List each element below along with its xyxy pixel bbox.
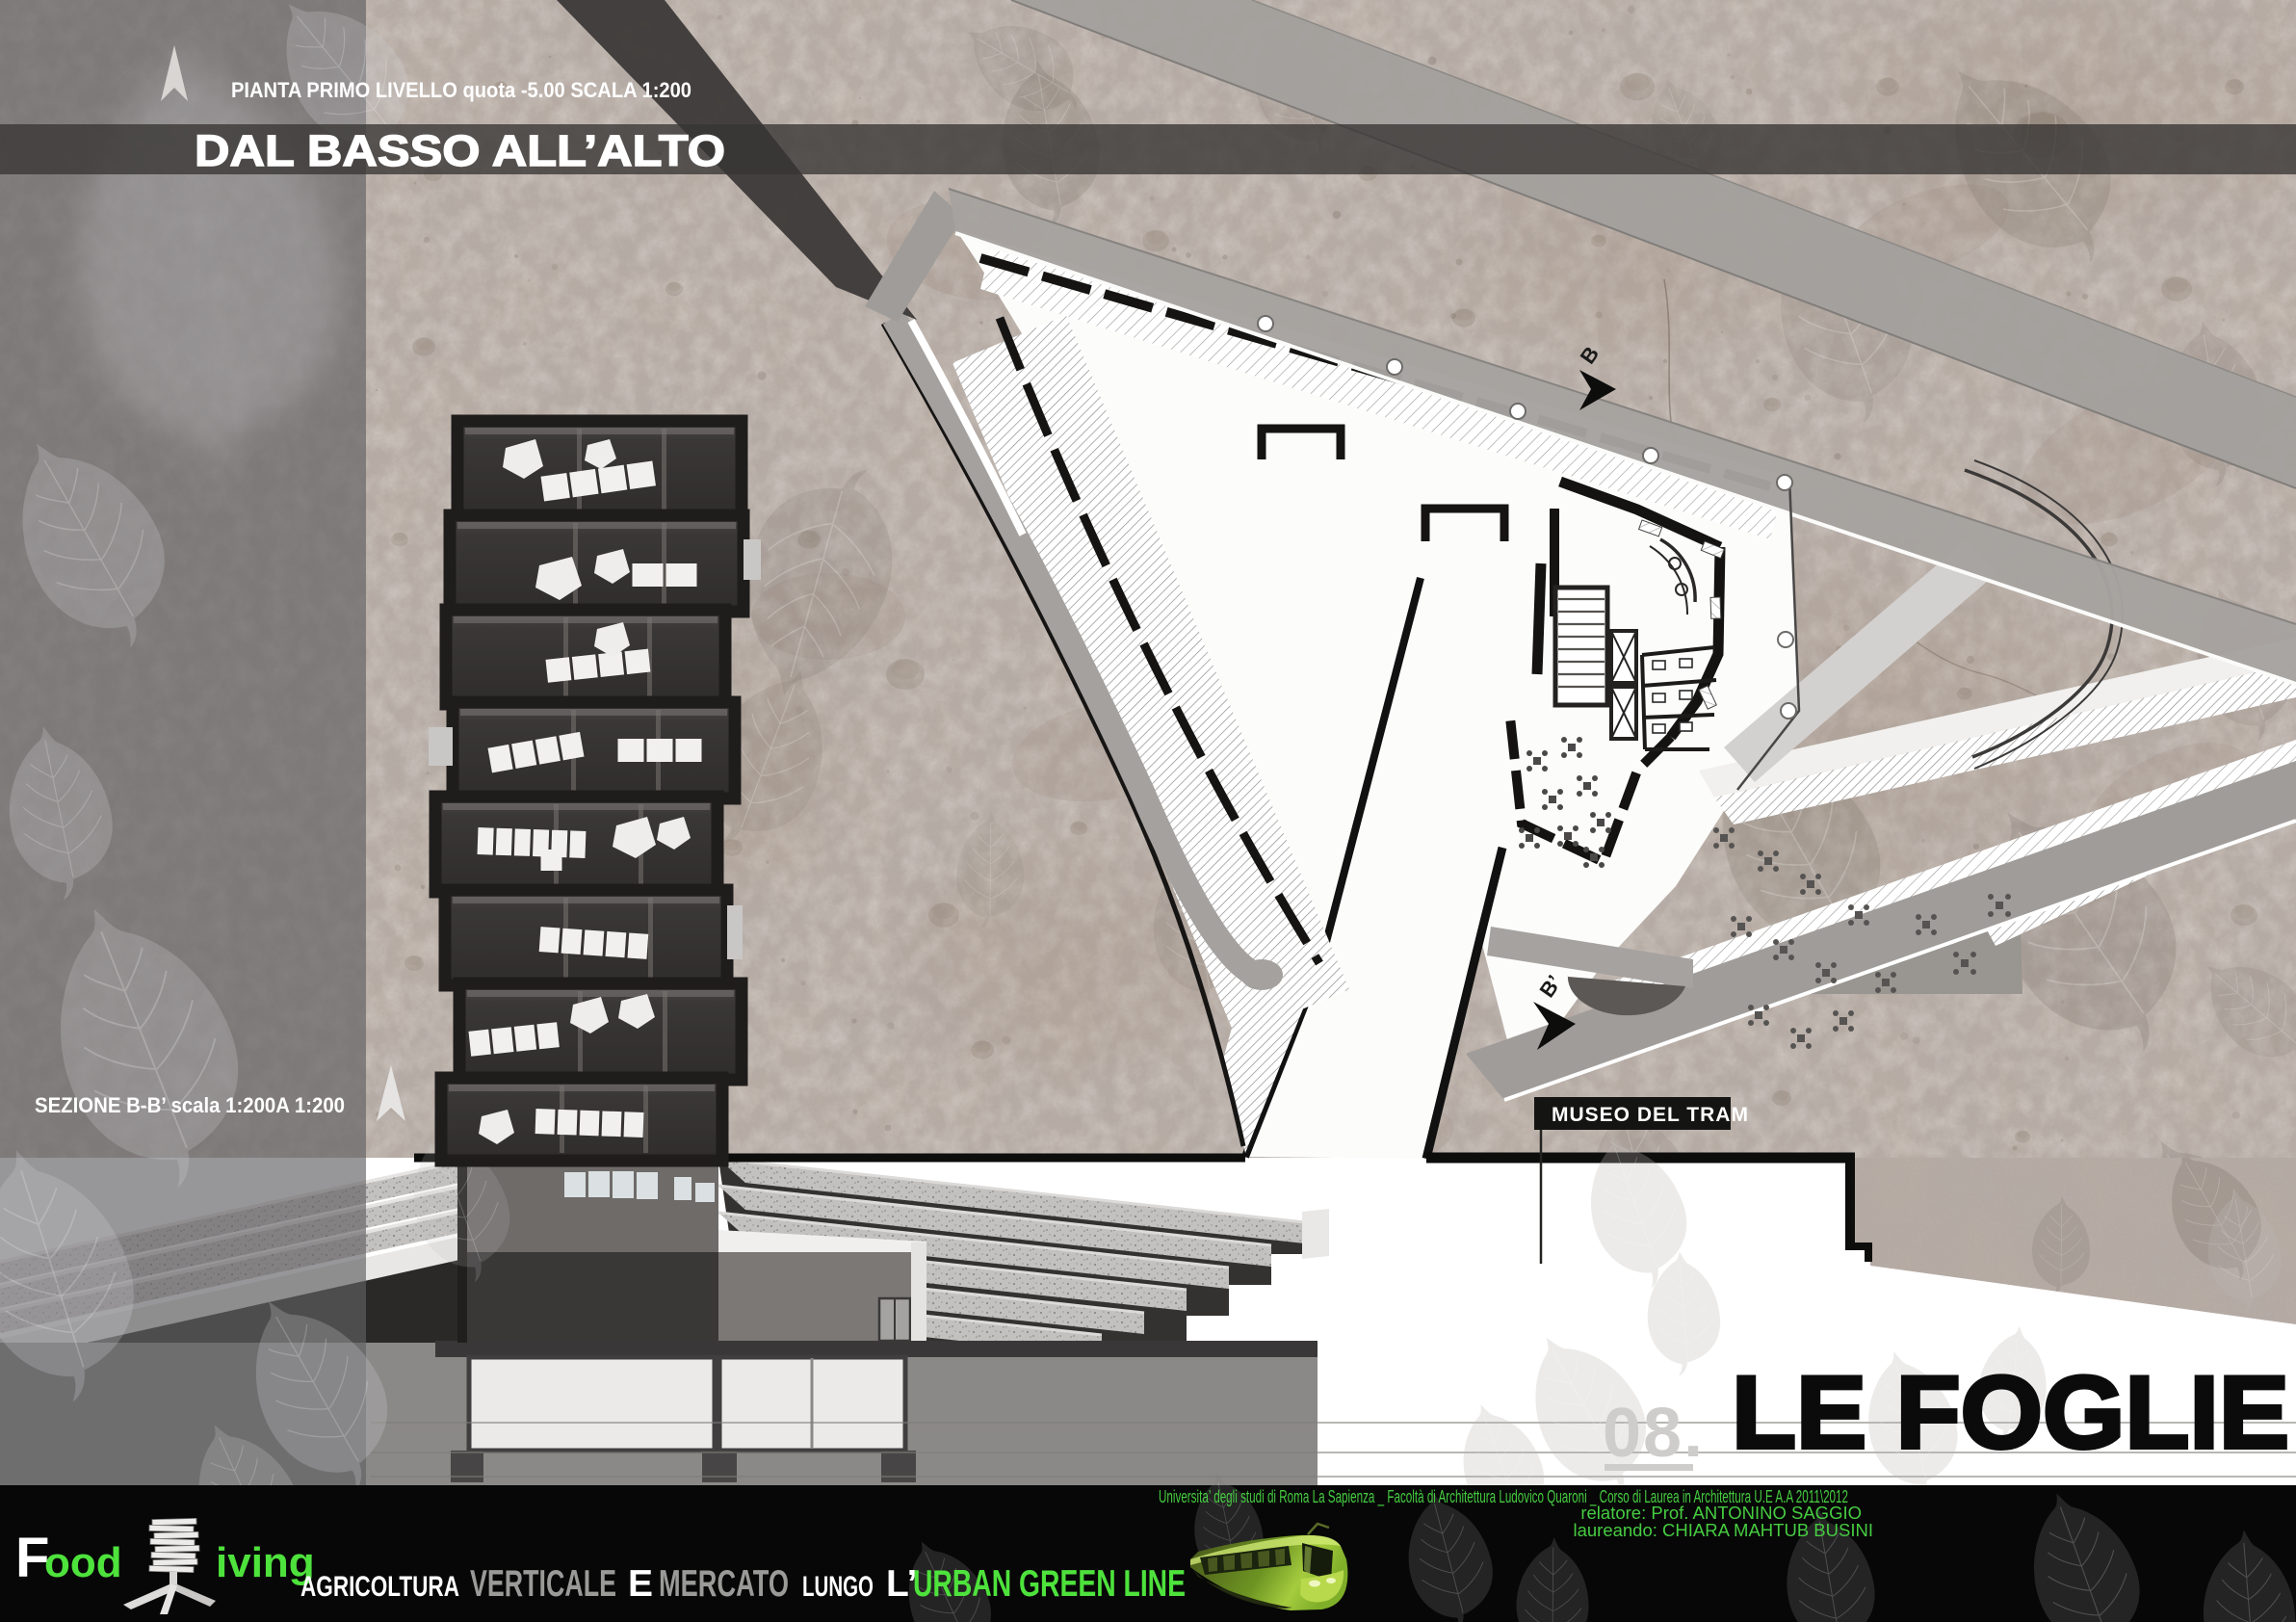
svg-text:LUNGO: LUNGO: [802, 1571, 874, 1603]
svg-text:ood: ood: [44, 1539, 122, 1586]
svg-text:PIANTA PRIMO LIVELLO quota -5.: PIANTA PRIMO LIVELLO quota -5.00 SCALA 1…: [231, 78, 691, 102]
svg-text:URBAN GREEN LINE: URBAN GREEN LINE: [913, 1563, 1186, 1605]
svg-text:08.: 08.: [1603, 1395, 1705, 1472]
svg-text:MERCATO: MERCATO: [659, 1563, 789, 1605]
svg-text:E: E: [628, 1563, 653, 1605]
svg-text:SEZIONE B-B’ scala 1:200A 1:20: SEZIONE B-B’ scala 1:200A 1:200: [35, 1093, 345, 1117]
svg-text:AGRICOLTURA: AGRICOLTURA: [300, 1571, 459, 1603]
svg-text:MUSEO DEL TRAM: MUSEO DEL TRAM: [1552, 1104, 1749, 1126]
svg-text:DAL BASSO ALL’ALTO: DAL BASSO ALL’ALTO: [195, 126, 725, 175]
svg-text:laureando: CHIARA MAHTUB BUSIN: laureando: CHIARA MAHTUB BUSINI: [1573, 1520, 1873, 1540]
svg-text:VERTICALE: VERTICALE: [470, 1563, 616, 1605]
svg-text:LE FOGLIE: LE FOGLIE: [1732, 1354, 2289, 1470]
